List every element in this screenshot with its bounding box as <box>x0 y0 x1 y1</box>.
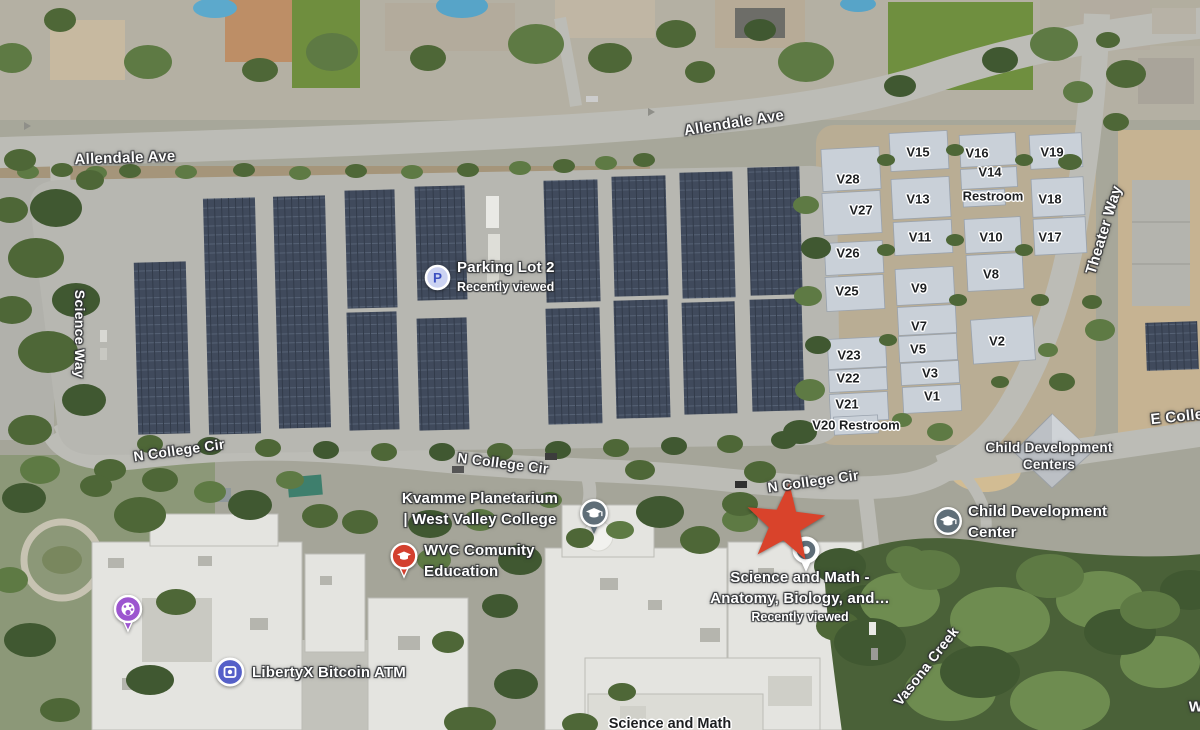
place-title-line2[interactable]: Center <box>968 523 1107 544</box>
place-kvamme-planetarium[interactable]: Kvamme Planetarium | West Valley College <box>402 489 558 530</box>
place-title[interactable]: LibertyX Bitcoin ATM <box>252 663 406 684</box>
place-title-line1[interactable]: Kvamme Planetarium <box>402 489 558 510</box>
place-libertyx-bitcoin-atm[interactable]: LibertyX Bitcoin ATM <box>252 663 406 684</box>
place-wvc-community-education[interactable]: WVC Comunity Education <box>424 541 535 582</box>
place-title-line1[interactable]: Science and Math - <box>710 568 890 589</box>
place-status: Recently viewed <box>457 279 555 296</box>
place-title-line2[interactable]: Education <box>424 562 535 583</box>
place-title-line2[interactable]: | West Valley College <box>402 510 558 531</box>
satellite-map[interactable]: P <box>0 0 1200 730</box>
water-label: Vasona Creek <box>890 623 961 708</box>
place-child-development-center[interactable]: Child Development Center <box>968 502 1107 543</box>
place-title[interactable]: Parking Lot 2 <box>457 258 555 279</box>
place-title-line1[interactable]: Child Development <box>968 502 1107 523</box>
place-parking-lot-2[interactable]: Parking Lot 2 Recently viewed <box>457 258 555 296</box>
place-title-line1[interactable]: WVC Comunity <box>424 541 535 562</box>
water-labels-layer: Vasona Creek <box>0 0 1200 730</box>
place-title-line2[interactable]: Anatomy, Biology, and… <box>710 589 890 610</box>
place-status: Recently viewed <box>710 609 890 626</box>
place-science-and-math[interactable]: Science and Math - Anatomy, Biology, and… <box>710 568 890 626</box>
